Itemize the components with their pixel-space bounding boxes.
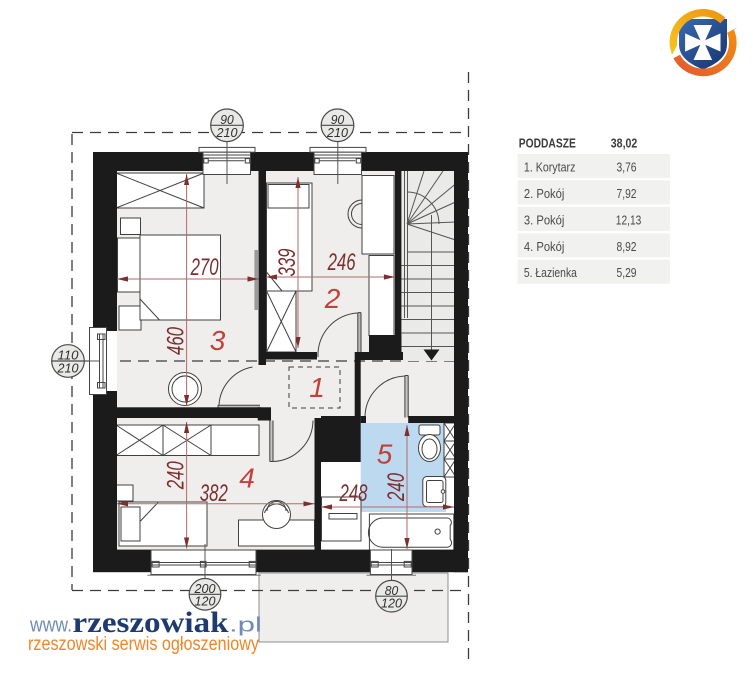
svg-text:7,92: 7,92 bbox=[617, 186, 637, 201]
svg-text:210: 210 bbox=[216, 125, 239, 140]
svg-text:120: 120 bbox=[381, 596, 403, 611]
svg-text:3. Pokój: 3. Pokój bbox=[524, 212, 565, 227]
svg-text:382: 382 bbox=[200, 480, 228, 507]
svg-text:3,76: 3,76 bbox=[617, 160, 637, 175]
svg-text:4. Pokój: 4. Pokój bbox=[524, 239, 565, 254]
svg-text:460: 460 bbox=[163, 327, 190, 355]
svg-text:210: 210 bbox=[57, 360, 80, 375]
svg-text:339: 339 bbox=[274, 249, 301, 277]
svg-text:12,13: 12,13 bbox=[616, 212, 642, 227]
svg-text:1. Korytarz: 1. Korytarz bbox=[524, 160, 576, 175]
svg-text:246: 246 bbox=[327, 249, 356, 276]
svg-text:2. Pokój: 2. Pokój bbox=[524, 186, 565, 201]
svg-text:3: 3 bbox=[210, 325, 226, 356]
svg-text:248: 248 bbox=[339, 480, 368, 507]
svg-text:8,92: 8,92 bbox=[617, 239, 637, 254]
svg-text:5,29: 5,29 bbox=[617, 265, 637, 280]
svg-text:2: 2 bbox=[324, 283, 341, 314]
svg-text:270: 270 bbox=[190, 254, 219, 281]
svg-text:PODDASZE: PODDASZE bbox=[519, 137, 576, 151]
svg-text:1: 1 bbox=[309, 372, 325, 403]
svg-text:5: 5 bbox=[377, 439, 393, 470]
svg-text:240: 240 bbox=[383, 473, 410, 502]
svg-text:38,02: 38,02 bbox=[611, 137, 638, 151]
svg-text:5. Łazienka: 5. Łazienka bbox=[524, 265, 578, 280]
svg-text:rzeszowski serwis ogłoszeniowy: rzeszowski serwis ogłoszeniowy bbox=[28, 634, 259, 655]
svg-text:4: 4 bbox=[239, 463, 255, 494]
svg-text:240: 240 bbox=[163, 461, 190, 490]
svg-text:210: 210 bbox=[326, 125, 349, 140]
